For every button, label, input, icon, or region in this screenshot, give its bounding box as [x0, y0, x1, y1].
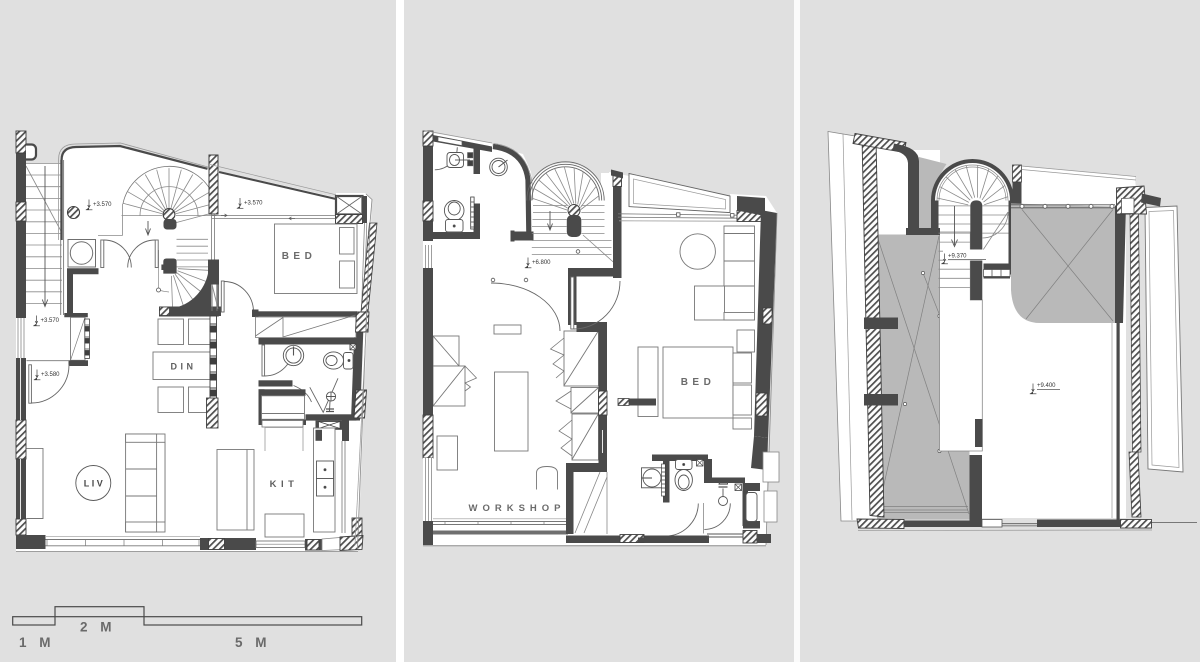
- svg-text:+6.800: +6.800: [532, 260, 551, 266]
- svg-text:BED: BED: [681, 377, 716, 388]
- svg-text:+9.400: +9.400: [1037, 383, 1056, 389]
- svg-text:DIN: DIN: [171, 362, 197, 372]
- svg-text:+3.570: +3.570: [244, 201, 263, 207]
- svg-text:+3.580: +3.580: [41, 372, 60, 378]
- svg-text:BED: BED: [282, 251, 317, 262]
- svg-text:+3.570: +3.570: [93, 202, 112, 208]
- svg-text:+3.570: +3.570: [41, 318, 60, 324]
- svg-text:+9.370: +9.370: [948, 254, 967, 260]
- svg-text:5 M: 5 M: [235, 635, 271, 650]
- svg-text:2 M: 2 M: [80, 620, 116, 635]
- svg-text:LIV: LIV: [84, 479, 106, 489]
- svg-text:1 M: 1 M: [19, 635, 55, 650]
- svg-text:WORKSHOP: WORKSHOP: [469, 503, 566, 514]
- svg-text:KIT: KIT: [270, 479, 299, 490]
